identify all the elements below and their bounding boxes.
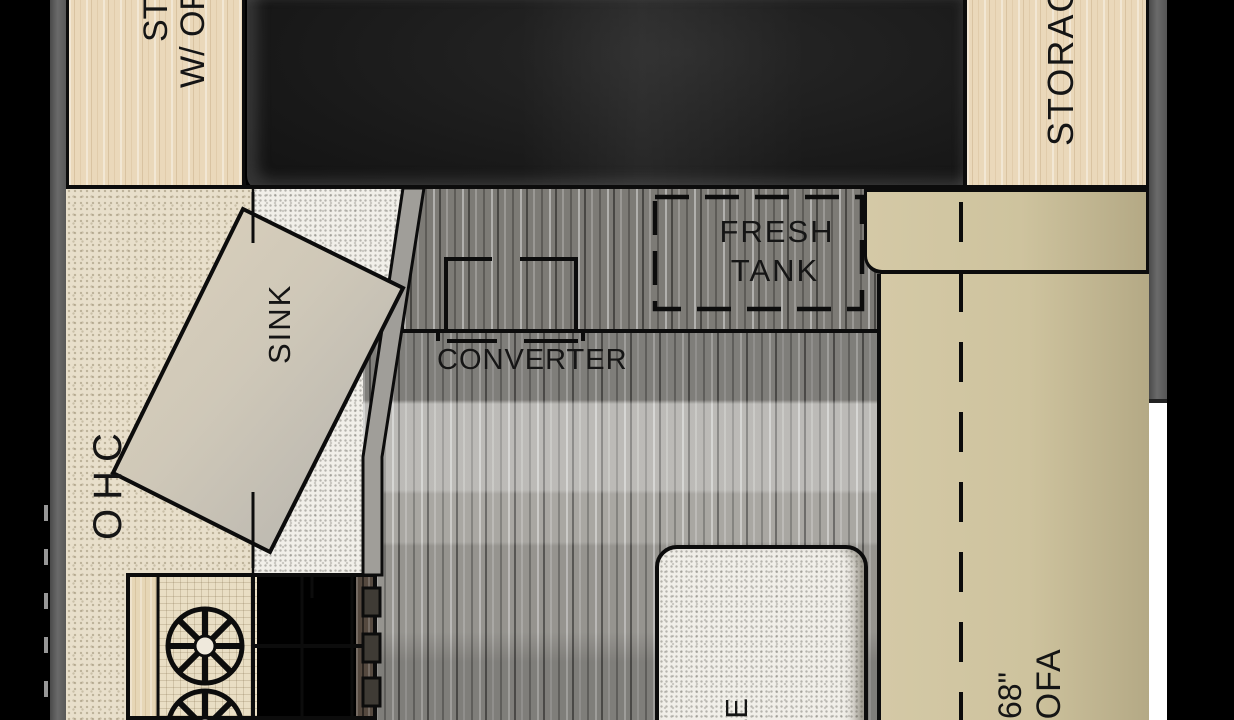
sofa-size-label: 68" <box>992 672 1029 719</box>
fresh-tank-label-line1: FRESH <box>719 214 834 250</box>
floorplan: ST W/ OF STORAGE OHC SINK CONVERTER FRES… <box>0 0 1234 720</box>
converter-box <box>438 259 583 341</box>
range-tabs <box>363 588 380 706</box>
fresh-tank-label-line2: TANK <box>731 253 819 289</box>
table-label-fragment: LE <box>719 698 755 720</box>
sink-shape <box>113 209 403 552</box>
sink-label: SINK <box>262 284 298 364</box>
cabinet-tl-label-line2: W/ OF <box>174 0 213 88</box>
burner-icon-2 <box>168 691 242 720</box>
burner-icon <box>168 609 242 683</box>
ohc-label: OHC <box>86 424 131 540</box>
storage-label: STORAGE <box>1040 0 1082 146</box>
sofa-label: SOFA <box>1030 648 1069 720</box>
cabinet-tl-label-line1: ST <box>137 0 176 42</box>
converter-label: CONVERTER <box>437 344 628 377</box>
counter-wedge <box>363 188 424 575</box>
